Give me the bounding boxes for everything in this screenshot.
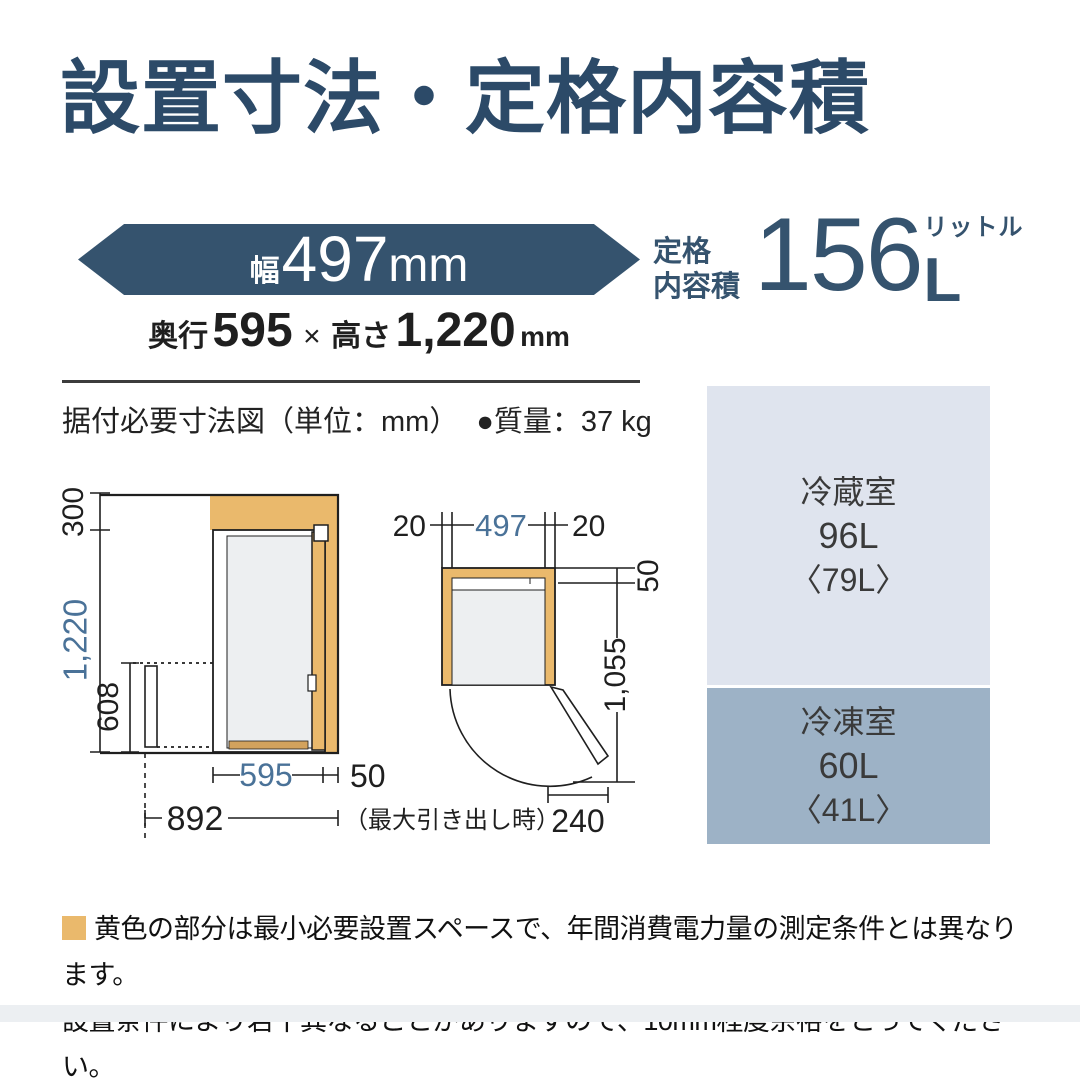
height-value: 1,220 [396, 304, 516, 357]
size-unit: mm [520, 321, 570, 352]
dim-door-projection: 240 [551, 803, 604, 839]
bottom-edge-strip [0, 1005, 1080, 1022]
dim-top-clearance: 300 [57, 487, 90, 537]
yellow-legend-square-icon [62, 916, 86, 940]
dim-drawer-height: 608 [92, 682, 125, 732]
height-label: 高さ [331, 320, 391, 353]
plan-fridge-interior [452, 590, 545, 685]
dim-depth: 595 [239, 757, 292, 793]
freezer-compartment-subcapacity: 〈41L〉 [790, 788, 907, 832]
drawer-front-panel [145, 666, 157, 747]
compartment-boxes: 冷蔵室 96L 〈79L〉 冷凍室 60L 〈41L〉 [707, 386, 990, 844]
width-prefix-label: 幅 [250, 246, 280, 290]
fridge-compartment-capacity: 96L [818, 514, 878, 558]
footnote-line1: 黄色の部分は最小必要設置スペースで、年間消費電力量の測定条件とは異なります。 [62, 906, 1022, 998]
diagram-caption-row: 据付必要寸法図（単位：mm） ●質量：37 kg [62, 398, 652, 440]
width-value: 497 [282, 224, 389, 295]
mass-label: ●質量：37 kg [476, 398, 651, 440]
page-title: 設置寸法・定格内容積 [60, 34, 870, 150]
side-hinge-block [314, 525, 328, 541]
capacity-unit: L [924, 250, 962, 312]
side-fridge-base [229, 741, 308, 749]
separator-line [62, 380, 640, 383]
freezer-compartment-box: 冷凍室 60L 〈41L〉 [707, 688, 990, 844]
depth-height-line: 奥行 595 × 高さ 1,220 mm [78, 303, 640, 358]
width-unit: mm [388, 238, 468, 293]
side-handle-notch [308, 675, 316, 691]
fridge-compartment-box: 冷蔵室 96L 〈79L〉 [707, 386, 990, 685]
freezer-compartment-name: 冷凍室 [800, 700, 896, 744]
dim-width: 497 [475, 508, 527, 543]
dim-left-clearance: 20 [393, 510, 426, 543]
fridge-compartment-name: 冷蔵室 [800, 470, 896, 514]
fridge-compartment-subcapacity: 〈79L〉 [790, 558, 907, 602]
plan-door-strip [452, 578, 545, 590]
dim-max-pullout: 892 [167, 800, 224, 838]
side-rear-panel [312, 532, 325, 750]
freezer-compartment-capacity: 60L [818, 744, 878, 788]
side-fridge-interior [227, 536, 312, 748]
footnote: 黄色の部分は最小必要設置スペースで、年間消費電力量の測定条件とは異なります。 設… [62, 906, 1022, 1090]
width-arrow-banner: 幅 497 mm [78, 224, 640, 295]
dim-height: 1,220 [57, 599, 94, 682]
dim-right-clearance: 20 [572, 510, 605, 543]
dim-open-depth: 1,055 [599, 637, 632, 712]
depth-label: 奥行 [148, 320, 208, 353]
rated-capacity-block: 定格 内容積 156 リットル L [653, 205, 1024, 312]
rated-capacity-label: 定格 内容積 [653, 235, 740, 305]
multiply-sign: × [297, 320, 327, 353]
rated-capacity-value: 156 [754, 205, 922, 305]
dim-plan-rear-clearance: 50 [632, 559, 665, 592]
installation-diagram: 300 1,220 608 595 50 892 （最大引き出し時） 20 49… [50, 460, 690, 890]
diagram-caption: 据付必要寸法図（単位：mm） [62, 398, 458, 440]
max-pullout-note: （最大引き出し時） [344, 807, 560, 834]
capacity-unit-ruby: リットル [924, 207, 1024, 242]
dim-rear-clearance: 50 [350, 758, 386, 794]
depth-value: 595 [213, 304, 293, 357]
top-view-diagram: 20 497 20 50 1,055 240 [393, 508, 665, 839]
